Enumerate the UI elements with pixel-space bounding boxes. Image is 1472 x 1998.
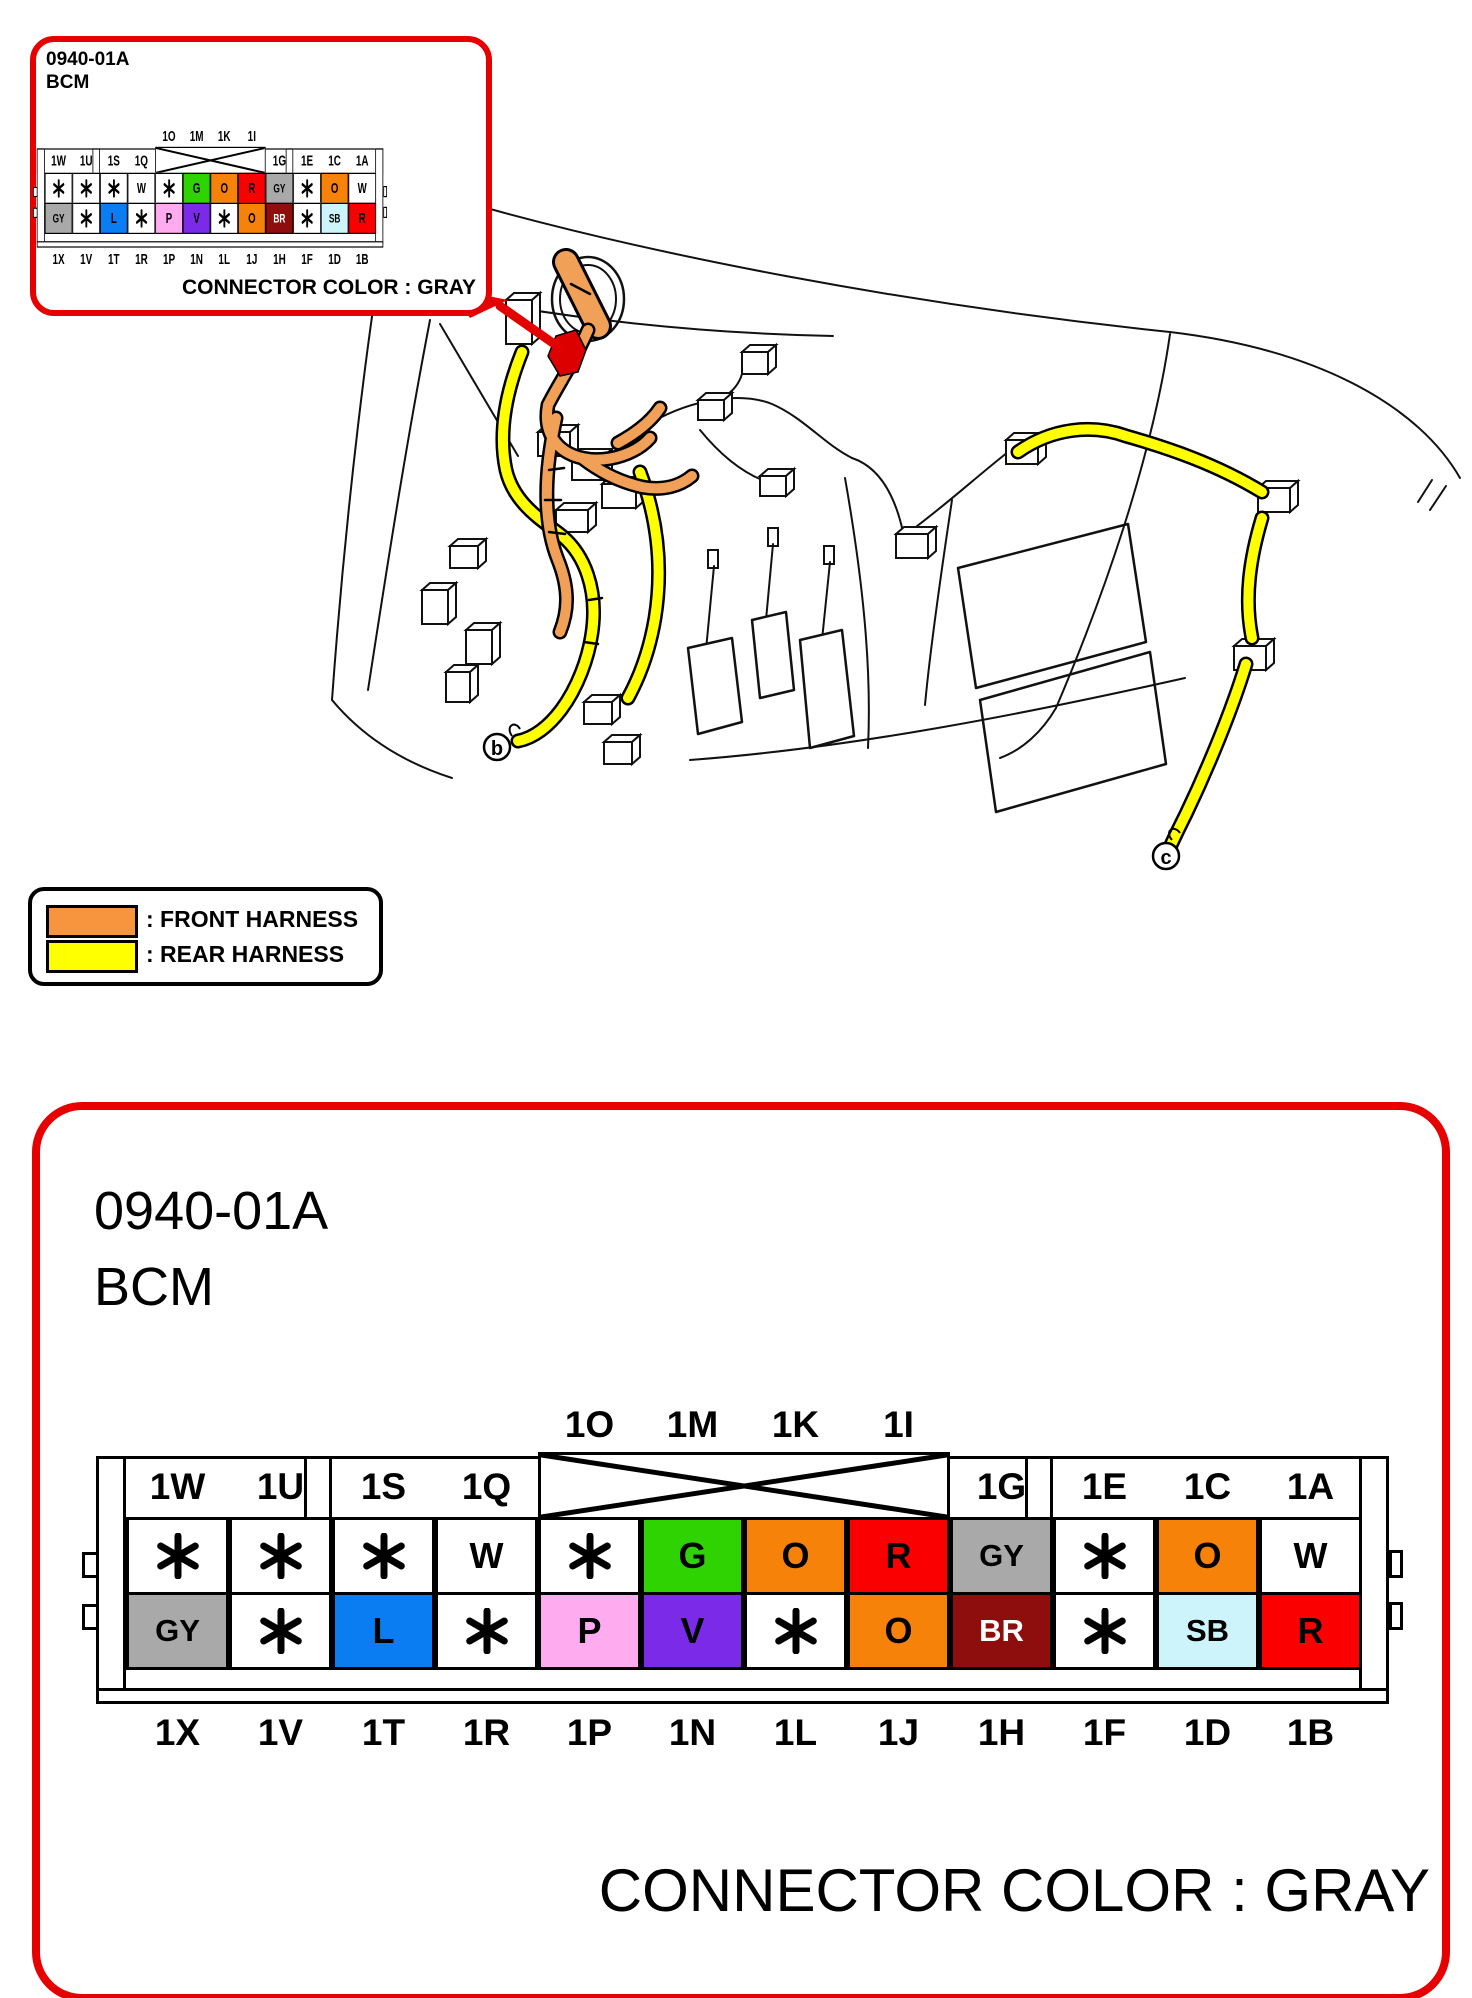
pin-label-1I: 1I (238, 128, 266, 145)
pin-cell-1B: R (1259, 1592, 1362, 1670)
pin-label-1J: 1J (847, 1712, 950, 1754)
right-clip (1389, 1602, 1403, 1630)
pin-cell-1P: P (155, 203, 183, 234)
pin-cell-1C: O (1156, 1517, 1259, 1595)
pin-cell-1F (293, 203, 321, 234)
crossed-out-block (155, 147, 265, 174)
pin-cell-1W (45, 173, 73, 204)
front-harness-label: : FRONT HARNESS (146, 906, 358, 933)
pin-label-1U: 1U (72, 152, 100, 169)
connector-box (896, 534, 928, 558)
pin-row2: GYLPVOBRSBR (45, 203, 376, 234)
bcm-connector-mini-diagram: 1W1X1U1V1S1T1Q1R1O1P1M1N1K1L1I1J1G1H1E1F… (33, 126, 387, 268)
pin-cell-1U (72, 173, 100, 204)
pin-label-1X: 1X (45, 251, 73, 268)
pin-row1: WGORGYOW (126, 1517, 1362, 1595)
star-icon (567, 1533, 613, 1579)
housing-bottom-strip (37, 241, 384, 247)
connector-box (584, 702, 612, 724)
star-icon (155, 1533, 201, 1579)
pin-cell-1K: O (210, 173, 238, 204)
housing-left-rail (37, 148, 45, 244)
connector-box (742, 352, 768, 374)
pin-label-1V: 1V (229, 1712, 332, 1754)
pin-cell-1G: GY (950, 1517, 1053, 1595)
pin-label-1E: 1E (1053, 1466, 1156, 1508)
pin-label-1S: 1S (332, 1466, 435, 1508)
pin-cell-1M: G (641, 1517, 744, 1595)
left-clip (82, 1552, 99, 1578)
bcm-connector-diagram: 1W1X1U1V1S1T1Q1R1O1P1M1N1K1L1I1J1G1H1E1F… (82, 1400, 1403, 1756)
pin-cell-1B: R (348, 203, 376, 234)
pin-label-1D: 1D (321, 251, 349, 268)
pin-cell-1N: V (641, 1592, 744, 1670)
crossed-out-block (538, 1452, 950, 1520)
detail-module-name: BCM (94, 1256, 214, 1318)
pin-label-1O: 1O (155, 128, 183, 145)
callout-c-letter: c (1160, 847, 1171, 869)
pin-label-1W: 1W (126, 1466, 229, 1508)
center-stack (958, 524, 1166, 812)
pin-cell-1W (126, 1517, 229, 1595)
pin-label-1C: 1C (321, 152, 349, 169)
pin-cell-1J: O (847, 1592, 950, 1670)
pin-label-1C: 1C (1156, 1466, 1259, 1508)
left-clip (33, 187, 38, 197)
connector-box (422, 590, 448, 624)
inset-connector-code: 0940-01A (46, 48, 129, 71)
pin-label-1A: 1A (348, 152, 376, 169)
pin-label-1X: 1X (126, 1712, 229, 1754)
pin-label-1M: 1M (641, 1404, 744, 1446)
housing-bottom-strip (96, 1688, 1389, 1704)
star-icon (301, 179, 313, 197)
pin-cell-1I: R (238, 173, 266, 204)
pin-cell-1X: GY (45, 203, 73, 234)
pin-label-1B: 1B (1259, 1712, 1362, 1754)
pin-label-1A: 1A (1259, 1466, 1362, 1508)
pin-cell-1V (229, 1592, 332, 1670)
pin-label-1K: 1K (210, 128, 238, 145)
pin-cell-1L (210, 203, 238, 234)
pin-cell-1A: W (348, 173, 376, 204)
connector-box (604, 742, 632, 764)
harness-legend: : FRONT HARNESS : REAR HARNESS (28, 887, 383, 986)
connector-box (1290, 481, 1298, 512)
pin-cell-1E (293, 173, 321, 204)
connector-box (448, 583, 456, 624)
pin-label-1F: 1F (293, 251, 321, 268)
connector-box (470, 665, 478, 702)
pin-label-1O: 1O (538, 1404, 641, 1446)
pin-cell-1N: V (183, 203, 211, 234)
inset-title: 0940-01A BCM (46, 48, 129, 94)
rear-harness-swatch (46, 940, 138, 973)
star-icon (1082, 1533, 1128, 1579)
star-icon (163, 179, 175, 197)
connector-box (492, 623, 500, 664)
star-icon (301, 209, 313, 227)
pin-cell-1T: L (332, 1592, 435, 1670)
pin-label-1P: 1P (538, 1712, 641, 1754)
star-icon (135, 209, 147, 227)
connector-box (450, 546, 478, 568)
housing-right-rail (375, 148, 383, 244)
pin-cell-1T: L (100, 203, 128, 234)
housing-left-rail (96, 1456, 126, 1696)
detail-connector-color-note: CONNECTOR COLOR : GRAY (500, 1856, 1430, 1925)
rear-harness-label: : REAR HARNESS (146, 941, 344, 968)
pin-cell-1E (1053, 1517, 1156, 1595)
pin-label-1I: 1I (847, 1404, 950, 1446)
wiring-diagram-page: b c 0940-01A BCM 1W1X1U1V1S1T1Q1R1O1P1M1… (0, 0, 1472, 1998)
connector-box (466, 630, 492, 664)
pin-cell-1Q: W (435, 1517, 538, 1595)
pin-cell-1O (538, 1517, 641, 1595)
pin-cell-1C: O (321, 173, 349, 204)
pin-label-1T: 1T (332, 1712, 435, 1754)
pin-label-1N: 1N (183, 251, 211, 268)
right-clip (383, 207, 387, 218)
pin-label-1S: 1S (100, 152, 128, 169)
star-icon (1082, 1608, 1128, 1654)
star-icon (108, 179, 120, 197)
star-icon (258, 1608, 304, 1654)
pin-cell-1A: W (1259, 1517, 1362, 1595)
pin-label-1Q: 1Q (128, 152, 156, 169)
pin-cell-1H: BR (266, 203, 294, 234)
pin-cell-1F (1053, 1592, 1156, 1670)
pin-label-1R: 1R (435, 1712, 538, 1754)
pin-cell-1J: O (238, 203, 266, 234)
pin-label-1G: 1G (950, 1466, 1053, 1508)
pin-label-1Q: 1Q (435, 1466, 538, 1508)
pin-label-1D: 1D (1156, 1712, 1259, 1754)
pin-label-1G: 1G (266, 152, 294, 169)
detail-connector-code: 0940-01A (94, 1180, 328, 1242)
star-icon (80, 179, 92, 197)
pin-cell-1L (744, 1592, 847, 1670)
pin-cell-1H: BR (950, 1592, 1053, 1670)
pin-label-1W: 1W (45, 152, 73, 169)
pin-label-1P: 1P (155, 251, 183, 268)
star-icon (258, 1533, 304, 1579)
connector-box (760, 476, 786, 496)
pin-cell-1K: O (744, 1517, 847, 1595)
pin-cell-1D: SB (321, 203, 349, 234)
pin-cell-1M: G (183, 173, 211, 204)
right-clip (383, 186, 387, 197)
connector-box (698, 400, 724, 420)
connector-box (1266, 639, 1274, 670)
star-icon (218, 209, 230, 227)
pin-label-1U: 1U (229, 1466, 332, 1508)
pin-label-1J: 1J (238, 251, 266, 268)
star-icon (52, 179, 64, 197)
left-clip (82, 1604, 99, 1630)
pin-label-1L: 1L (744, 1712, 847, 1754)
pin-cell-1R (435, 1592, 538, 1670)
pin-cell-1O (155, 173, 183, 204)
housing-right-rail (1359, 1456, 1389, 1696)
pin-label-1E: 1E (293, 152, 321, 169)
front-harness-swatch (46, 905, 138, 938)
pin-label-1H: 1H (266, 251, 294, 268)
star-icon (80, 209, 92, 227)
pin-cell-1G: GY (266, 173, 294, 204)
pin-label-1R: 1R (128, 251, 156, 268)
pin-cell-1S (100, 173, 128, 204)
pin-label-1M: 1M (183, 128, 211, 145)
inset-module-name: BCM (46, 71, 129, 94)
pin-cell-1V (72, 203, 100, 234)
callout-b-letter: b (491, 738, 503, 760)
star-icon (464, 1608, 510, 1654)
pin-row2: GYLPVOBRSBR (126, 1592, 1362, 1670)
pin-cell-1U (229, 1517, 332, 1595)
pin-label-1B: 1B (348, 251, 376, 268)
right-clip (1389, 1550, 1403, 1578)
pin-label-1T: 1T (100, 251, 128, 268)
pin-label-1H: 1H (950, 1712, 1053, 1754)
pin-row1: WGORGYOW (45, 173, 376, 204)
pin-label-1K: 1K (744, 1404, 847, 1446)
pin-label-1V: 1V (72, 251, 100, 268)
pin-cell-1P: P (538, 1592, 641, 1670)
connector-box (928, 527, 936, 558)
connector-box (446, 672, 470, 702)
pin-label-1N: 1N (641, 1712, 744, 1754)
pin-cell-1D: SB (1156, 1592, 1259, 1670)
left-clip (33, 208, 38, 218)
star-icon (361, 1533, 407, 1579)
pin-label-1F: 1F (1053, 1712, 1156, 1754)
pin-label-1L: 1L (210, 251, 238, 268)
star-icon (773, 1608, 819, 1654)
rear-harness (503, 352, 1262, 852)
pin-cell-1Q: W (128, 173, 156, 204)
pin-cell-1R (128, 203, 156, 234)
pin-cell-1I: R (847, 1517, 950, 1595)
pin-cell-1S (332, 1517, 435, 1595)
inset-connector-color-note: CONNECTOR COLOR : GRAY (150, 276, 476, 300)
pin-cell-1X: GY (126, 1592, 229, 1670)
pedals (688, 612, 854, 748)
